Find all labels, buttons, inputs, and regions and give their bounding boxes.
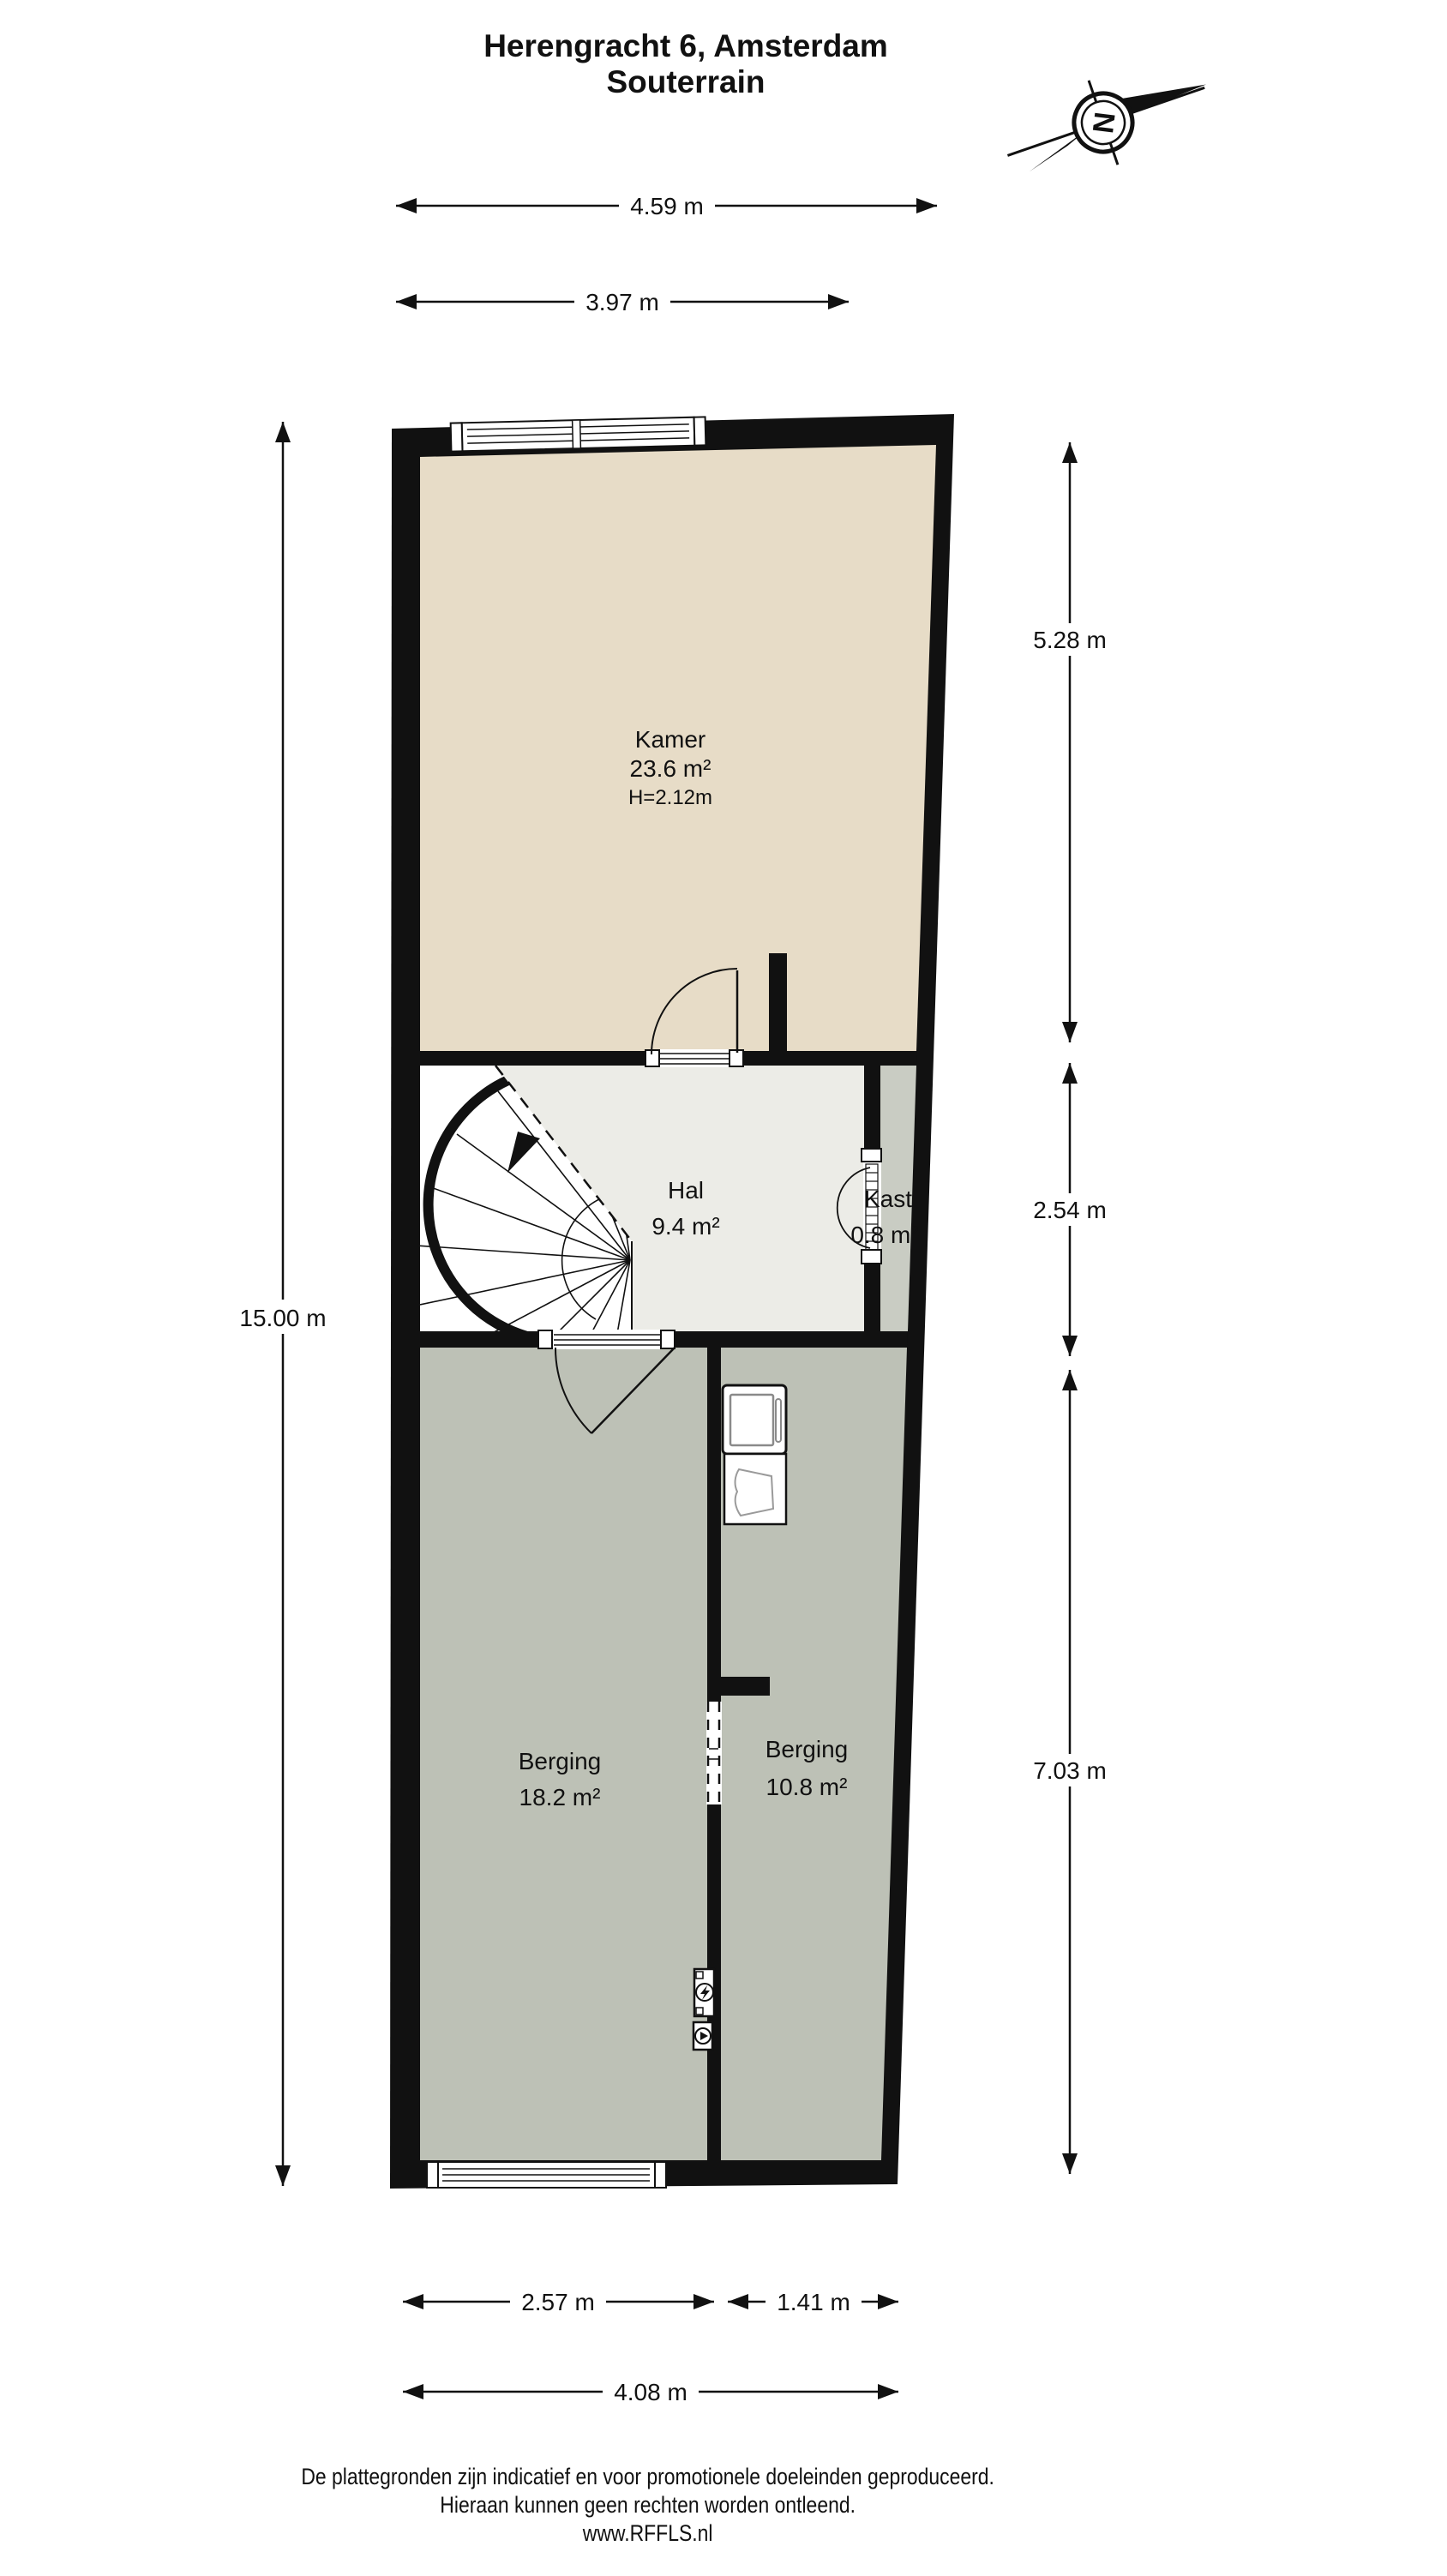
floorplan-page: Herengracht 6, Amsterdam Souterrain N	[0, 0, 1447, 2572]
berging-links-area: 18.2 m²	[519, 1784, 601, 1810]
dim-bottom-right: 1.41 m	[728, 2285, 898, 2318]
gas-meter-icon	[693, 2022, 712, 2050]
dim-left-total: 15.00 m	[225, 422, 341, 2186]
kamer-area: 23.6 m²	[630, 755, 711, 782]
window-top	[451, 417, 706, 451]
svg-text:7.03 m: 7.03 m	[1033, 1757, 1107, 1784]
berging-rechts-label: Berging	[766, 1736, 849, 1762]
svg-text:15.00 m: 15.00 m	[239, 1305, 326, 1331]
svg-text:1.41 m: 1.41 m	[777, 2289, 850, 2315]
kamer-ceiling-height: H=2.12m	[628, 786, 712, 809]
svg-text:4.08 m: 4.08 m	[614, 2379, 687, 2405]
kast-area: 0.8 m²	[850, 1222, 918, 1248]
floorplan-svg: Herengracht 6, Amsterdam Souterrain N	[0, 0, 1447, 2572]
page-title: Herengracht 6, Amsterdam Souterrain	[483, 28, 888, 99]
dryer-icon	[724, 1454, 786, 1524]
svg-text:5.28 m: 5.28 m	[1033, 627, 1107, 653]
dim-right-kamer: 5.28 m	[1020, 442, 1120, 1042]
berging-links-label: Berging	[519, 1748, 602, 1774]
svg-text:2.54 m: 2.54 m	[1033, 1197, 1107, 1223]
dim-top-front: 3.97 m	[396, 285, 849, 318]
window-bottom	[427, 2162, 666, 2188]
footer-line-2: Hieraan kunnen geen rechten worden ontle…	[440, 2492, 856, 2518]
dim-right-berging: 7.03 m	[1020, 1370, 1120, 2174]
footer-line-1: De plattegronden zijn indicatief en voor…	[301, 2464, 994, 2489]
footer-disclaimer: De plattegronden zijn indicatief en voor…	[301, 2464, 994, 2546]
dim-right-hal: 2.54 m	[1020, 1063, 1120, 1356]
electric-meter-icon	[694, 1969, 714, 2016]
hal-area: 9.4 m²	[651, 1213, 719, 1240]
kamer-label: Kamer	[635, 726, 705, 753]
svg-text:2.57 m: 2.57 m	[521, 2289, 595, 2315]
hal-label: Hal	[668, 1177, 704, 1204]
svg-text:3.97 m: 3.97 m	[585, 289, 659, 315]
dim-bottom-total: 4.08 m	[403, 2375, 898, 2408]
compass-north-letter: N	[1086, 110, 1121, 135]
wall-opening-berging	[706, 1702, 722, 1804]
dim-top-total: 4.59 m	[396, 189, 937, 222]
title-address: Herengracht 6, Amsterdam	[483, 28, 888, 63]
footer-website: www.RFFLS.nl	[582, 2520, 713, 2546]
dim-bottom-left: 2.57 m	[403, 2285, 714, 2318]
washing-machine-icon	[723, 1385, 786, 1454]
kast-label: Kast	[864, 1186, 912, 1212]
svg-text:4.59 m: 4.59 m	[630, 193, 704, 219]
berging-rechts-area: 10.8 m²	[766, 1774, 848, 1800]
north-compass-icon: N	[993, 45, 1221, 197]
title-floor: Souterrain	[606, 64, 765, 99]
